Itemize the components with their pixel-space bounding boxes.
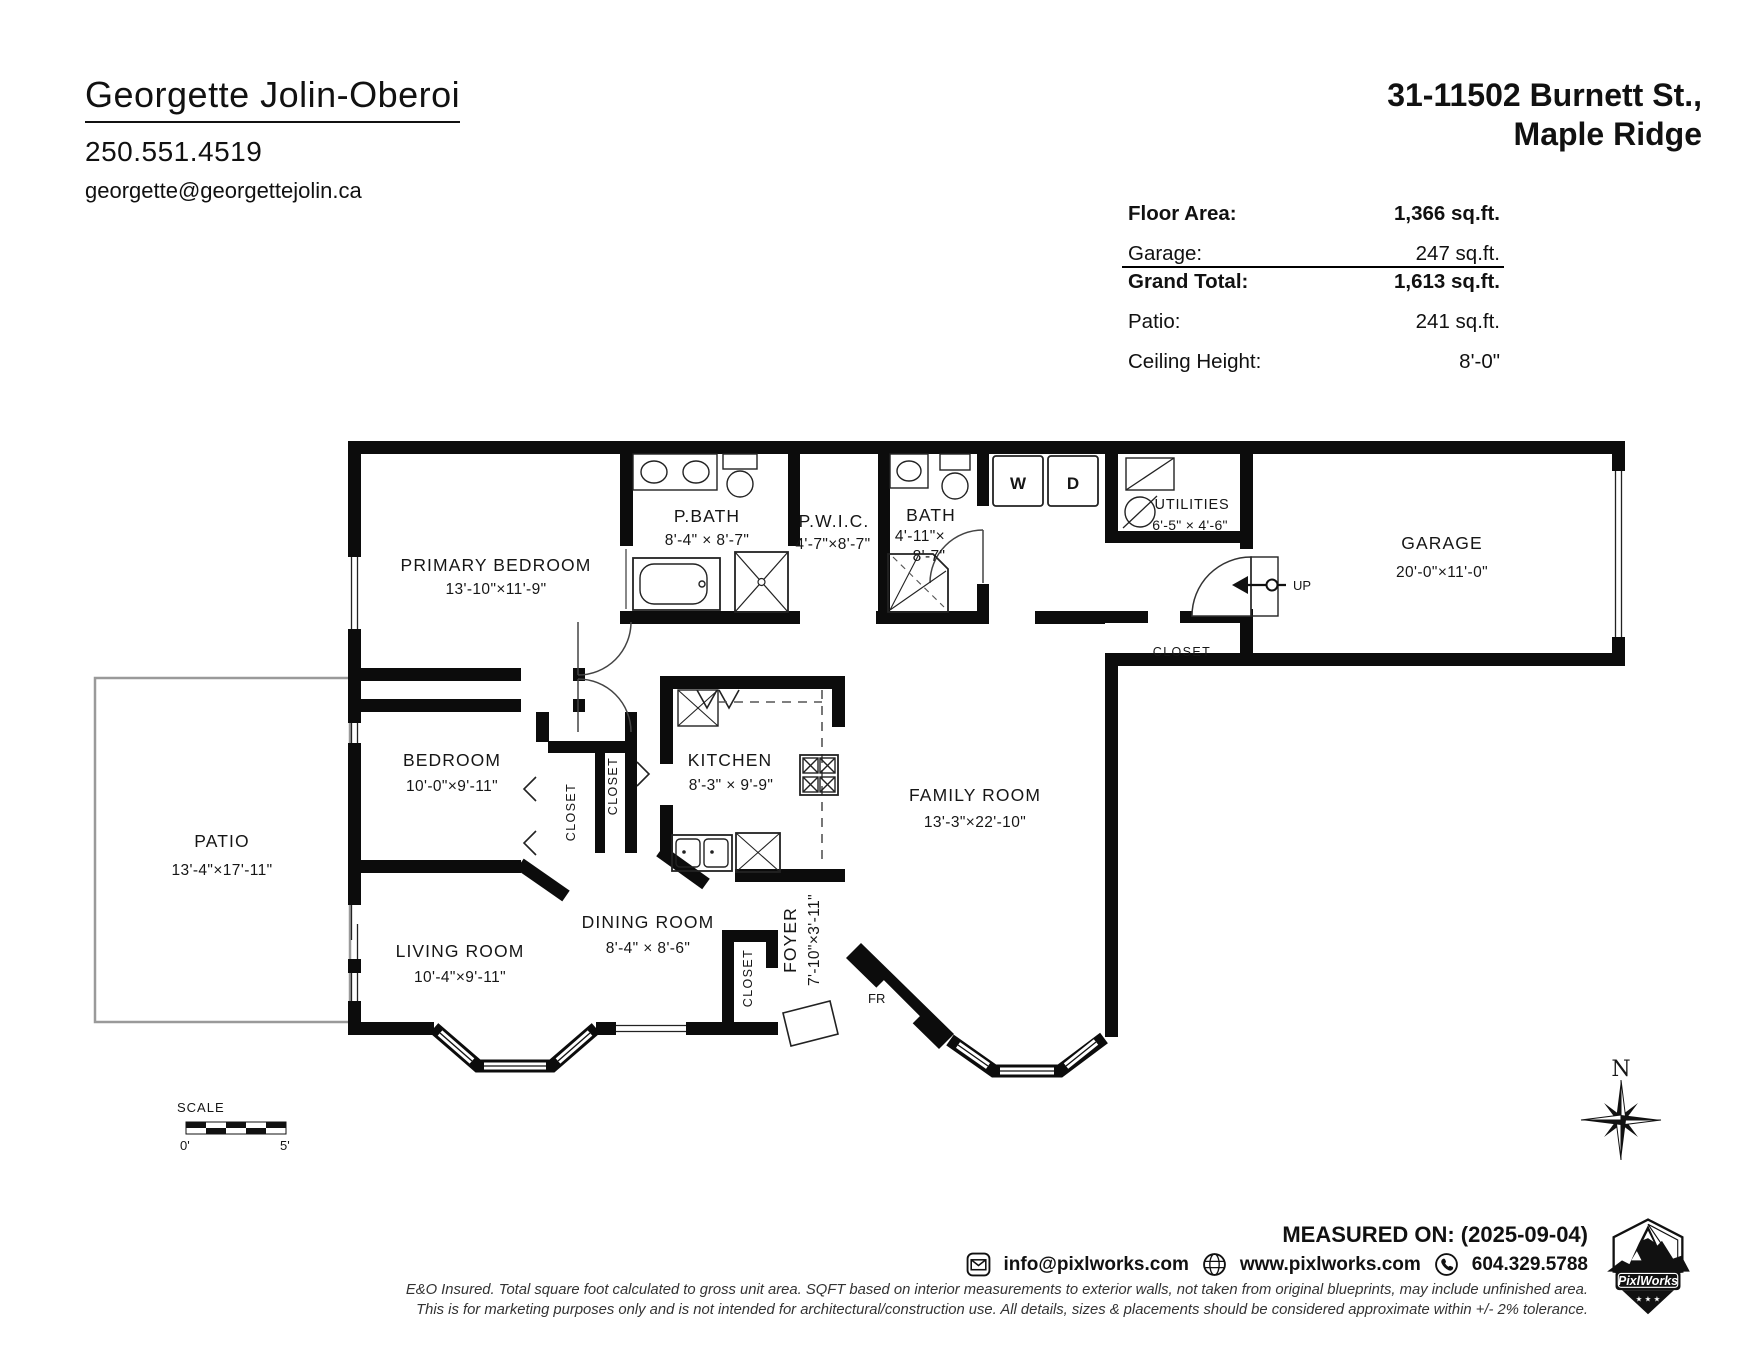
- diagonal-walls: [520, 851, 706, 896]
- room-primary-bedroom: PRIMARY BEDROOM: [401, 555, 592, 575]
- front-entry: [783, 984, 916, 1046]
- sink-icon: [641, 461, 667, 483]
- room-pbath: P.BATH: [674, 506, 740, 526]
- room-foyer: FOYER: [780, 907, 800, 973]
- sink-icon: [897, 461, 921, 481]
- room-bath: BATH: [906, 505, 956, 525]
- room-pbath-dims: 8'-4" × 8'-7": [665, 532, 750, 549]
- room-kitchen-dims: 8'-3" × 9'-9": [689, 777, 774, 794]
- toilet-tank: [723, 454, 757, 469]
- toilet-icon: [942, 473, 968, 499]
- front-door-leaf: [783, 1001, 838, 1046]
- room-living: LIVING ROOM: [396, 941, 525, 961]
- room-bedroom: BEDROOM: [403, 750, 501, 770]
- scale-end: 5': [280, 1138, 290, 1153]
- room-bath-dims1: 4'-11"×: [895, 528, 945, 545]
- toilet-icon: [727, 471, 753, 497]
- room-labels: PRIMARY BEDROOM 13'-10"×11'-9" P.BATH 8'…: [171, 497, 1488, 1007]
- contact-row: info@pixlworks.com www.pixlworks.com 604…: [966, 1252, 1588, 1277]
- front-door-label: FR: [868, 991, 885, 1006]
- tub-drain: [699, 581, 705, 587]
- room-bath-dims2: 8'-7": [913, 548, 946, 565]
- measured-on: MEASURED ON: (2025-09-04): [1282, 1222, 1588, 1248]
- room-utilities-dims: 6'-5" × 4'-6": [1152, 517, 1228, 533]
- toilet-tank: [940, 454, 970, 470]
- room-dining: DINING ROOM: [582, 912, 715, 932]
- logo-stars: ★ ★ ★: [1636, 1294, 1661, 1303]
- floorplan-page: { "header": { "agent_name": "Georgette J…: [0, 0, 1760, 1360]
- scale-start: 0': [180, 1138, 190, 1153]
- floor-plan-drawing: W D UP: [0, 0, 1760, 1360]
- disclaimer-line-2: This is for marketing purposes only and …: [288, 1302, 1588, 1318]
- bathtub-basin: [640, 564, 707, 604]
- room-patio-dims: 13'-4"×17'-11": [171, 862, 272, 879]
- laundry-fixtures: W D: [993, 456, 1098, 506]
- room-family: FAMILY ROOM: [909, 785, 1041, 805]
- stove-burners: [803, 758, 835, 792]
- scale-label: SCALE: [177, 1100, 225, 1115]
- room-bedroom-closet: CLOSET: [564, 783, 578, 841]
- room-bedroom-dims: 10'-0"×9'-11": [406, 778, 498, 795]
- room-hallway-closet: CLOSET: [606, 757, 620, 815]
- room-garage: GARAGE: [1401, 533, 1482, 553]
- room-utilities: UTILITIES: [1155, 497, 1230, 513]
- room-foyer-dims: 7'-10"×3'-11": [806, 894, 823, 986]
- dryer-label: D: [1067, 474, 1079, 493]
- bay-window-living: [434, 1028, 596, 1066]
- room-pwic: P.W.I.C.: [799, 511, 870, 531]
- room-garage-dims: 20'-0"×11'-0": [1396, 564, 1488, 581]
- room-living-dims: 10'-4"×9'-11": [414, 969, 506, 986]
- disclaimer-line-1: E&O Insured. Total square foot calculate…: [288, 1282, 1588, 1298]
- room-pwic-dims: 4'-7"×8'-7": [795, 536, 870, 553]
- vanity-counter: [633, 454, 717, 490]
- email-icon: [966, 1252, 991, 1277]
- up-label: UP: [1293, 578, 1311, 593]
- room-family-dims: 13'-3"×22'-10": [924, 814, 1026, 831]
- website-globe-icon: [1202, 1252, 1227, 1277]
- vanity-counter: [890, 454, 928, 488]
- scale-bar: SCALE 0' 5': [177, 1100, 290, 1153]
- north-label: N: [1611, 1057, 1630, 1082]
- room-primary-bedroom-dims: 13'-10"×11'-9": [445, 581, 546, 598]
- compass-rose-icon: N: [1581, 1057, 1661, 1160]
- contact-phone: 604.329.5788: [1472, 1254, 1588, 1276]
- contact-website: www.pixlworks.com: [1240, 1254, 1421, 1276]
- bay-window-family: [950, 1038, 1104, 1071]
- room-dining-dims: 8'-4" × 8'-6": [606, 940, 691, 957]
- phone-icon: [1434, 1252, 1459, 1277]
- pixlworks-logo: PixlWorks ★ ★ ★: [1598, 1214, 1698, 1318]
- room-foyer-closet: CLOSET: [741, 949, 755, 1007]
- contact-email: info@pixlworks.com: [1004, 1254, 1189, 1276]
- sink-icon: [683, 461, 709, 483]
- room-patio: PATIO: [194, 831, 249, 851]
- room-kitchen: KITCHEN: [688, 750, 773, 770]
- washer-label: W: [1010, 474, 1027, 493]
- room-hall-closet: CLOSET: [1153, 645, 1211, 659]
- logo-name: PixlWorks: [1618, 1274, 1678, 1288]
